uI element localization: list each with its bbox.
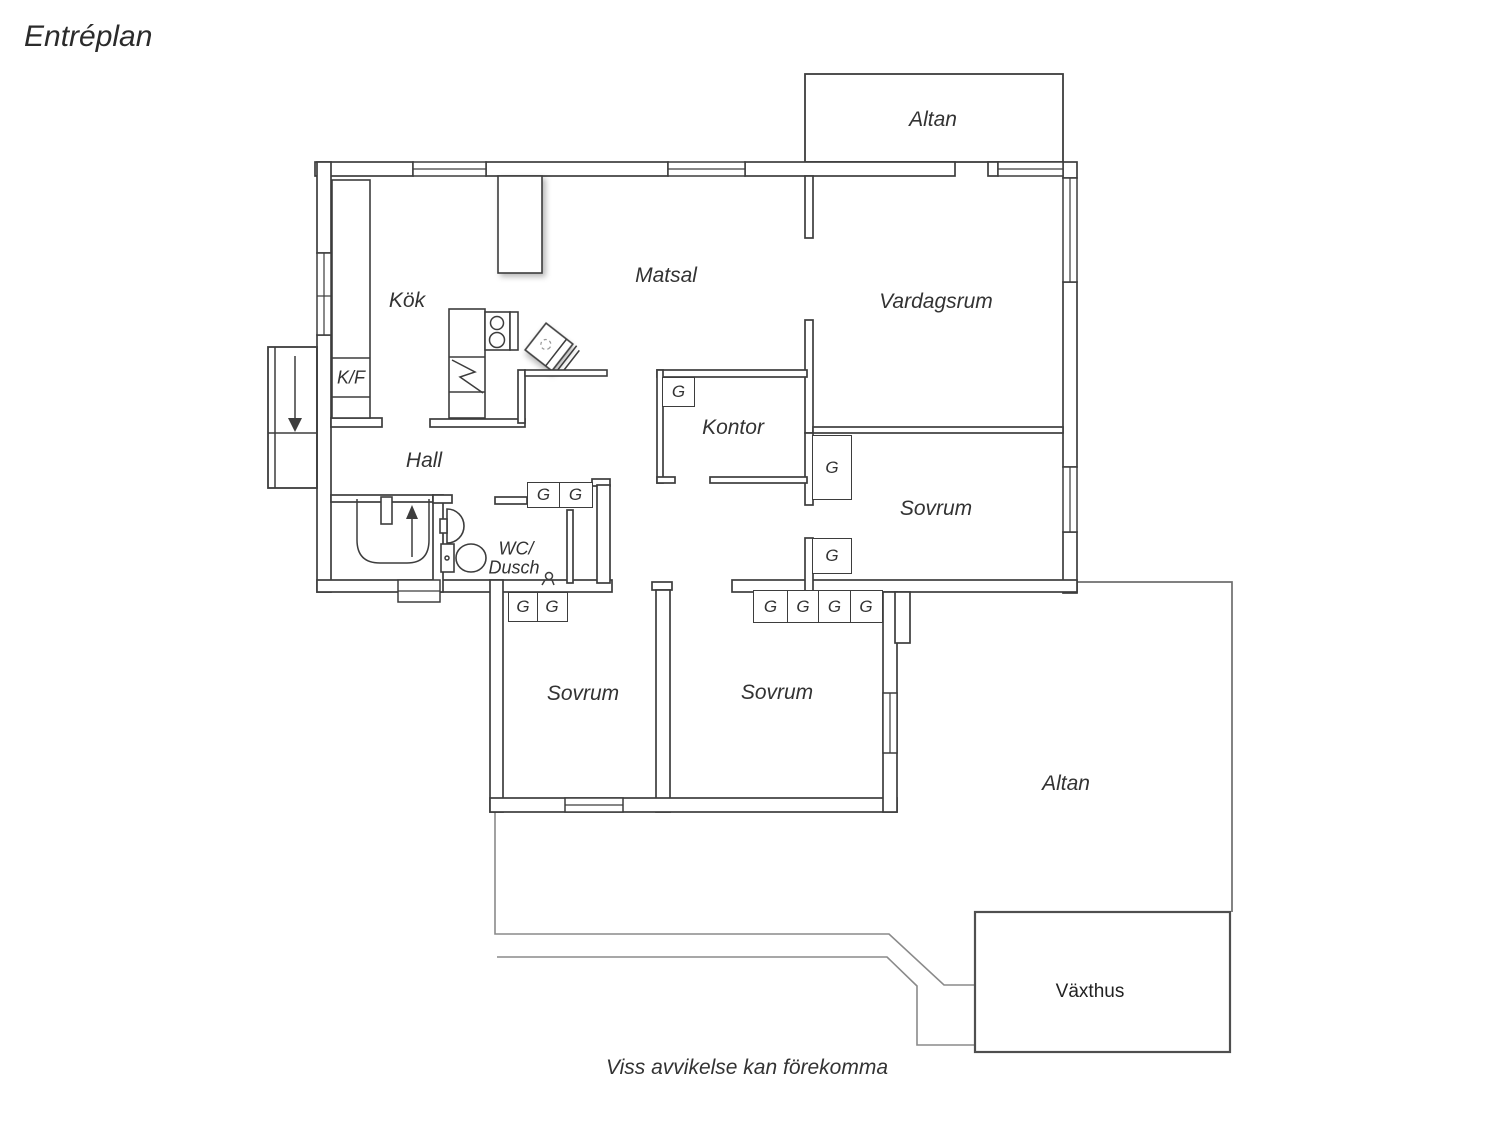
wardrobe-box: G [812,538,852,574]
floorplan-drawing [0,0,1500,1142]
window [317,253,331,335]
wardrobe-box: G [537,592,568,622]
room-label-sovrum-mid: Sovrum [900,497,972,521]
wardrobe-box: G [527,482,560,508]
deck-outline-upper [495,812,976,985]
wardrobe-box: G [662,377,695,407]
wardrobe-label: G [859,597,872,617]
wardrobe-box: G [508,592,538,622]
altan-bottom-edge [1077,582,1232,912]
kitchen-counter-column [449,309,485,418]
stair-down [268,347,317,488]
wardrobe-label: G [516,597,529,617]
wardrobe-label: G [825,546,838,566]
page-title: Entréplan [24,20,152,54]
chimney-block [498,176,542,273]
room-label-sovrum-left: Sovrum [547,682,619,706]
wardrobe-box: G [787,590,820,623]
wardrobe-box: G [753,590,788,623]
window [1063,178,1077,282]
up-arrow-icon [406,505,418,519]
entrance-door [398,580,440,602]
wardrobe-box: G [850,590,883,623]
window [998,162,1063,176]
room-label-vardagsrum: Vardagsrum [879,290,993,314]
deck-outline-lower [497,957,976,1045]
room-label-kontor: Kontor [702,416,764,440]
wardrobe-label: G [796,597,809,617]
down-arrow-icon [288,418,302,432]
wardrobe-label: G [537,485,550,505]
wardrobe-label: G [545,597,558,617]
room-label-wc-line1: WC/ [499,539,534,560]
window [668,162,745,176]
kitchen-fixtures [332,176,607,418]
stove-icon [485,312,518,350]
kitchen-sink-icon [525,322,581,377]
room-label-vaxthus: Växthus [1056,981,1125,1003]
window [1063,467,1077,532]
room-label-kok: Kök [389,289,425,313]
room-label-sovrum-right: Sovrum [741,681,813,705]
wardrobe-label: G [828,597,841,617]
wardrobe-label: G [569,485,582,505]
wardrobe-box: G [559,482,593,508]
wardrobe-box: G [818,590,851,623]
window [413,162,486,176]
window [565,798,623,812]
room-label-kf: K/F [337,368,365,389]
windows [317,162,1077,812]
room-label-matsal: Matsal [635,264,697,288]
room-label-altan-bottom: Altan [1042,772,1090,796]
wardrobe-label: G [825,458,838,478]
stair-up [357,497,429,563]
window [883,693,897,753]
floorplan-page: G G G G G G G G G G G Entréplan Altan Kö… [0,0,1500,1142]
disclaimer-note: Viss avvikelse kan förekomma [606,1056,888,1080]
room-label-altan-top: Altan [909,108,957,132]
toilet-icon [441,544,486,572]
wardrobe-label: G [764,597,777,617]
counter-bar [525,370,607,376]
room-label-wc-line2: Dusch [488,558,539,579]
wardrobe-box: G [812,435,852,500]
wardrobe-label: G [672,382,685,402]
room-label-hall: Hall [406,449,442,473]
